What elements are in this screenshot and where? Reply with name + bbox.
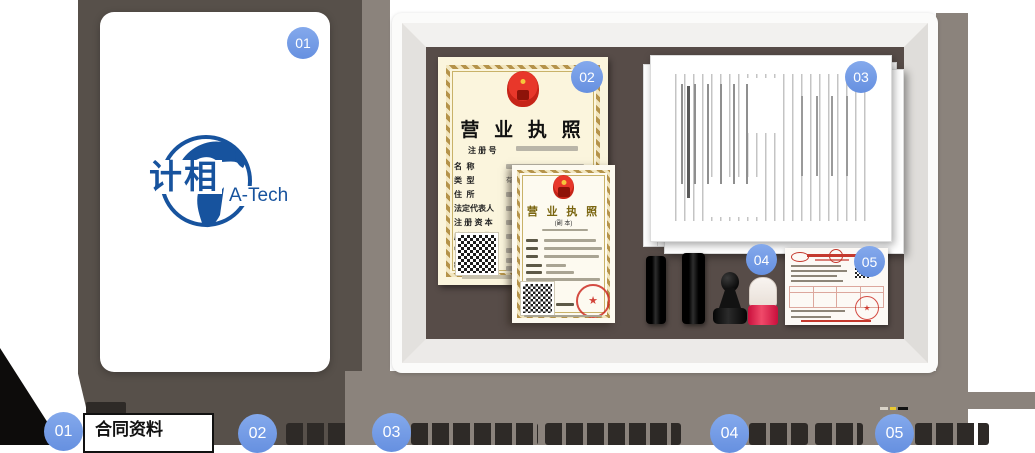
field-label: 类 型 (454, 175, 506, 186)
brand-logo-cn: 计相 (146, 160, 222, 194)
step-badge-03: 03 (845, 61, 877, 93)
round-black-stamp (710, 272, 750, 324)
field-label: 名 称 (454, 161, 506, 172)
field-label: 法定代表人 (454, 203, 506, 214)
invoice-red-seal (855, 296, 879, 320)
bottom-step-label-02-cutoff (286, 423, 349, 445)
invoice-table-header-line (789, 292, 884, 293)
bottom-step-badge-03: 03 (372, 413, 411, 452)
charter-blank-area (746, 78, 780, 133)
step-badge-02: 02 (571, 61, 603, 93)
bottom-step-label-05-cutoff (915, 423, 989, 445)
invoice-oval-stamp (791, 252, 809, 262)
step-badge-05: 05 (854, 246, 885, 277)
bottom-step-badge-01: 01 (44, 412, 83, 451)
bottom-step-label-04-cutoff (749, 423, 808, 445)
bottom-step-label-01: 合同资料 (83, 413, 214, 453)
national-emblem-icon (553, 175, 574, 199)
charter-title-column (687, 86, 690, 198)
license-reg-label: 注 册 号 (468, 145, 496, 156)
banner-canvas: { "brand": { "logo_cn": "计相", "logo_en":… (0, 0, 1035, 445)
field-label: 注 册 资 本 (454, 217, 506, 228)
invoice-footer-line (801, 320, 871, 322)
background-gray-band-right (936, 13, 968, 445)
license-title: 营 业 执 照 (438, 115, 608, 142)
step-badge-04: 04 (746, 244, 777, 275)
stamp-base (713, 308, 747, 324)
license-copy-subtitle: (副 本) (512, 218, 615, 227)
brand-logo-en: A-Tech (227, 186, 290, 206)
stamp-cap (749, 277, 777, 307)
bottom-step-badge-02: 02 (238, 414, 277, 453)
license-copy-qr-code (521, 282, 554, 315)
red-seal-stamp (748, 277, 778, 325)
black-seal-stamp-2 (682, 253, 705, 324)
step-badge-01: 01 (287, 27, 319, 59)
license-qr-code (456, 233, 498, 275)
bottom-step-badge-05: 05 (875, 414, 914, 453)
bottom-step-label-04-cutoff (815, 423, 863, 445)
black-seal-stamp-1 (646, 256, 666, 324)
stamp-neck (719, 288, 741, 308)
bottom-step-badge-04: 04 (710, 414, 749, 453)
decor-marks (880, 407, 908, 411)
charter-dense-text (681, 84, 751, 184)
invoice-round-seal (829, 249, 843, 263)
stamp-red-base (748, 305, 778, 325)
bottom-step-label-03-cutoff (545, 423, 681, 445)
license-copy-title: 营 业 执 照 (512, 203, 615, 219)
license-copy-red-seal (576, 284, 610, 318)
background-gray-notch (968, 392, 1035, 409)
business-license-copy: 营 业 执 照 (副 本) (512, 165, 615, 323)
national-emblem-icon (507, 71, 539, 107)
license-reg-number-redacted (516, 146, 578, 151)
field-label: 住 所 (454, 189, 506, 200)
charter-dense-text (801, 96, 861, 176)
bottom-step-label-03-cutoff (411, 423, 538, 445)
